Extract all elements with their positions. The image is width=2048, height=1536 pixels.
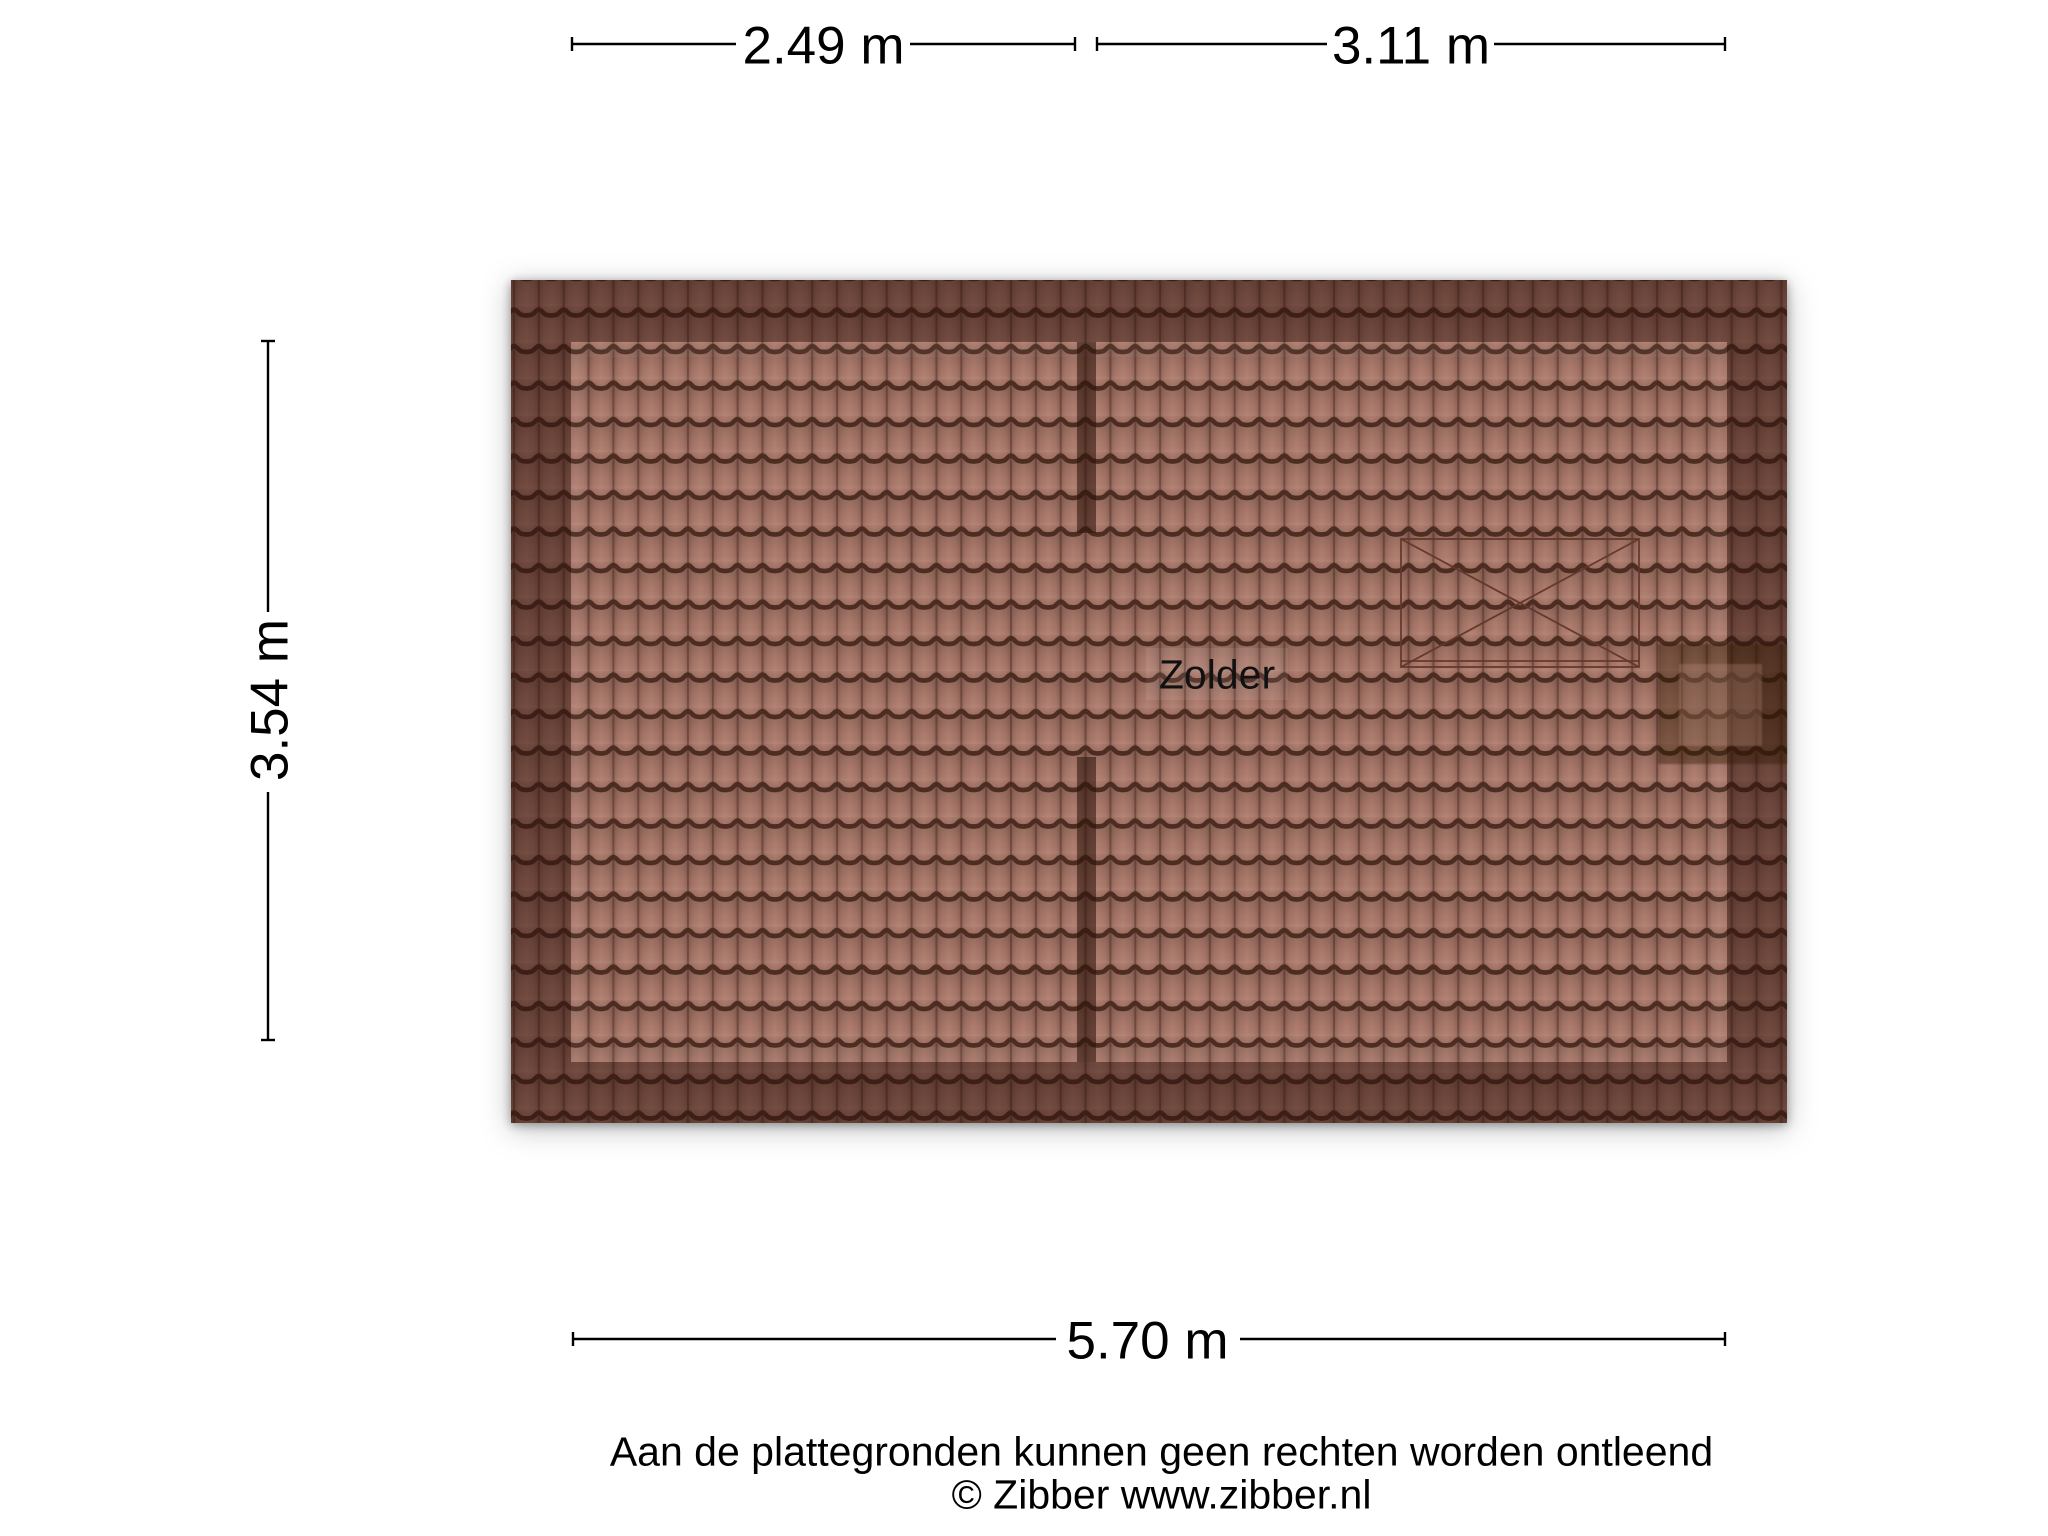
- svg-text:3.54 m: 3.54 m: [241, 619, 300, 781]
- svg-text:Zolder: Zolder: [1159, 652, 1275, 698]
- svg-text:2.49 m: 2.49 m: [742, 17, 904, 76]
- svg-text:3.11 m: 3.11 m: [1332, 17, 1490, 76]
- svg-text:Aan de plattegronden kunnen ge: Aan de plattegronden kunnen geen rechten…: [610, 1429, 1713, 1475]
- svg-text:© Zibber www.zibber.nl: © Zibber www.zibber.nl: [952, 1472, 1372, 1518]
- svg-text:5.70 m: 5.70 m: [1066, 1312, 1228, 1371]
